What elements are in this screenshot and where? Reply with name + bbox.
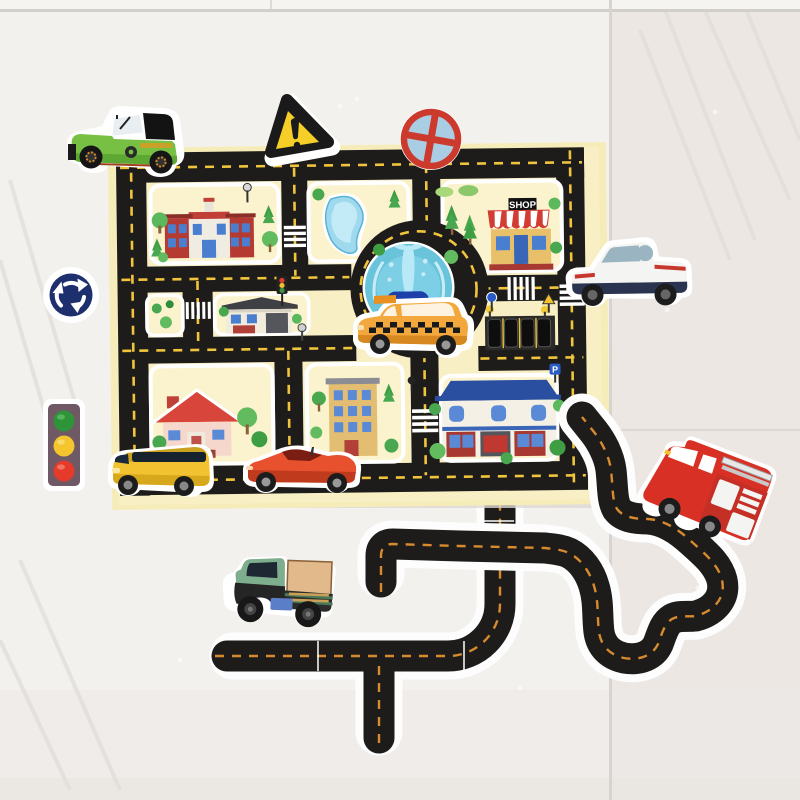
svg-text:SHOP: SHOP — [509, 200, 537, 211]
svg-text:P: P — [552, 365, 558, 375]
